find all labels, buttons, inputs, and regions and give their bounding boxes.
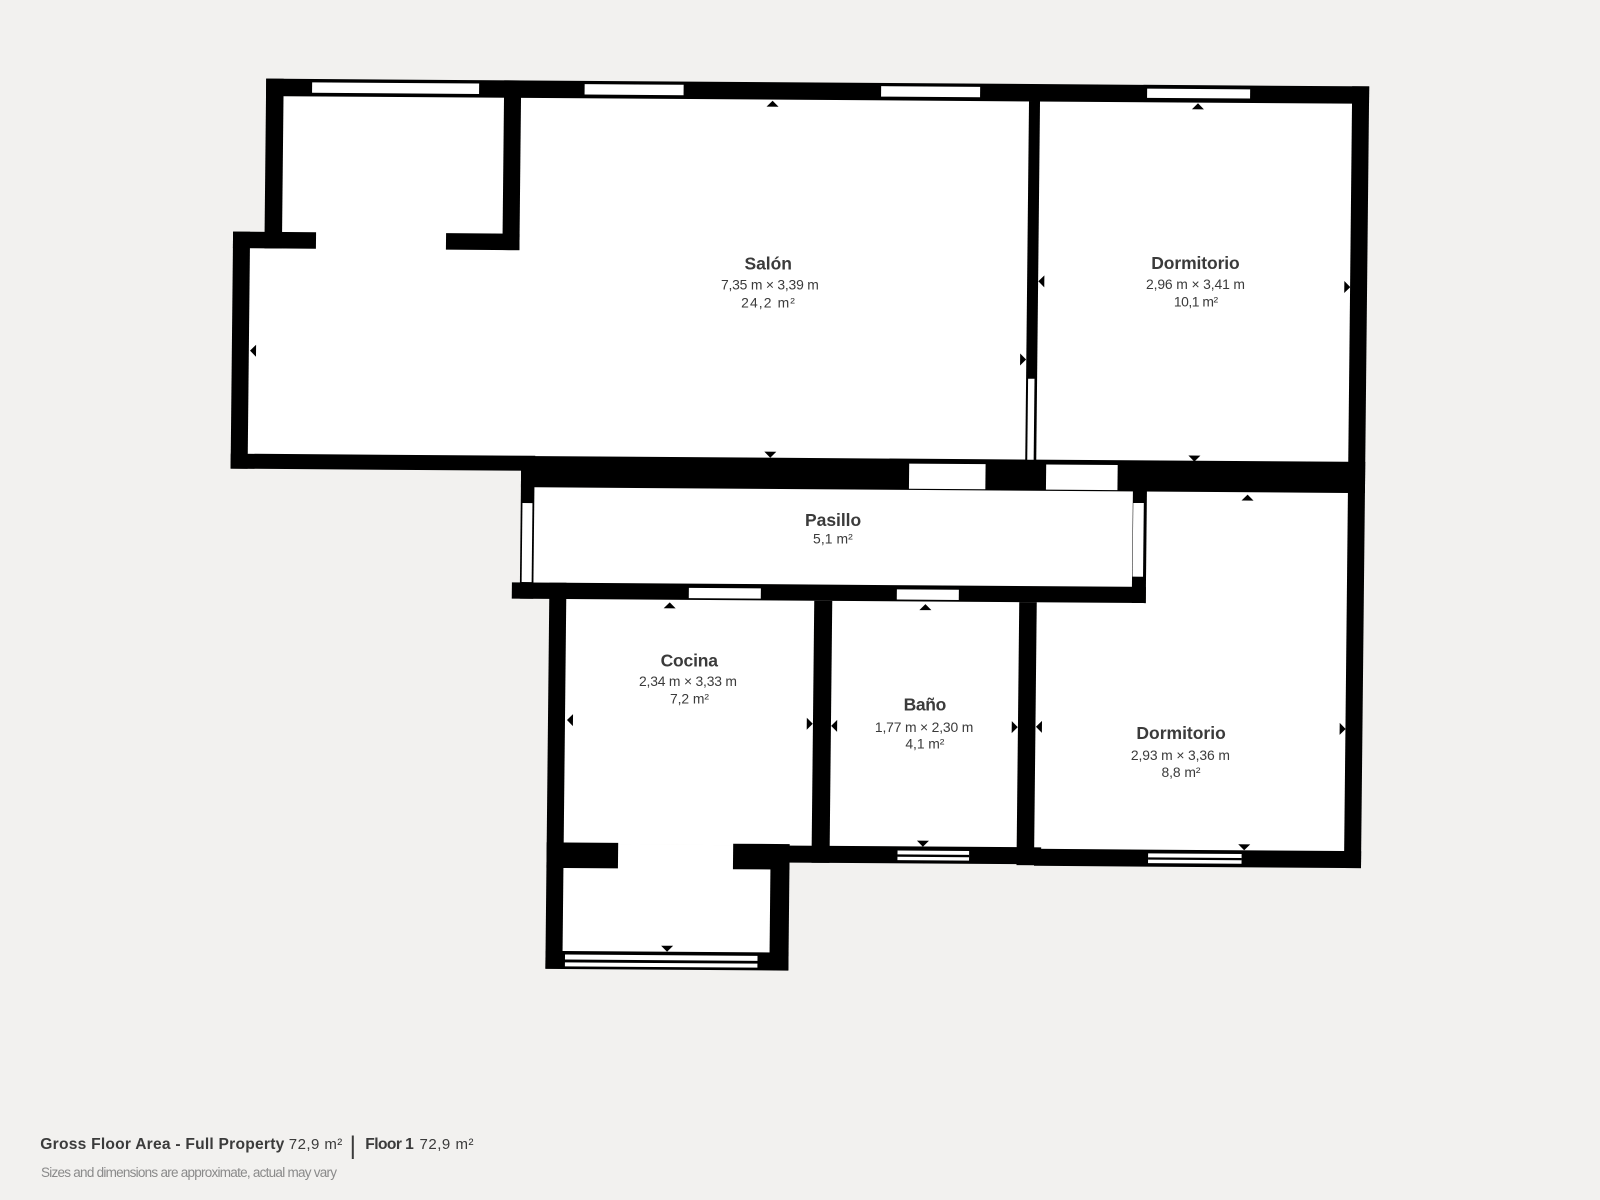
svg-text:7,35 m × 3,39 m: 7,35 m × 3,39 m (721, 276, 819, 292)
svg-text:Dormitorio: Dormitorio (1136, 723, 1225, 743)
svg-text:Sizes and dimensions are appro: Sizes and dimensions are approximate, ac… (41, 1165, 337, 1180)
svg-text:Baño: Baño (904, 695, 947, 715)
svg-text:2,96 m × 3,41 m: 2,96 m × 3,41 m (1146, 276, 1245, 292)
svg-text:72,9 m²: 72,9 m² (289, 1136, 343, 1153)
svg-text:24,2 m²: 24,2 m² (741, 294, 795, 310)
svg-text:1,77 m × 2,30 m: 1,77 m × 2,30 m (875, 719, 973, 735)
svg-text:Floor 1: Floor 1 (365, 1136, 414, 1153)
svg-text:7,2 m²: 7,2 m² (670, 690, 709, 706)
svg-text:2,34 m × 3,33 m: 2,34 m × 3,33 m (639, 673, 737, 689)
svg-text:8,8 m²: 8,8 m² (1162, 764, 1201, 780)
svg-text:Dormitorio: Dormitorio (1151, 253, 1240, 273)
svg-text:2,93 m × 3,36 m: 2,93 m × 3,36 m (1131, 747, 1230, 763)
svg-text:5,1 m²: 5,1 m² (813, 531, 853, 547)
svg-text:Cocina: Cocina (661, 651, 719, 671)
svg-text:Pasillo: Pasillo (805, 510, 861, 530)
svg-text:10,1 m²: 10,1 m² (1174, 293, 1219, 309)
svg-text:72,9 m²: 72,9 m² (420, 1136, 474, 1153)
svg-text:4,1 m²: 4,1 m² (905, 735, 944, 751)
svg-text:Gross Floor Area - Full Proper: Gross Floor Area - Full Property (40, 1136, 284, 1153)
svg-text:Salón: Salón (744, 253, 792, 273)
